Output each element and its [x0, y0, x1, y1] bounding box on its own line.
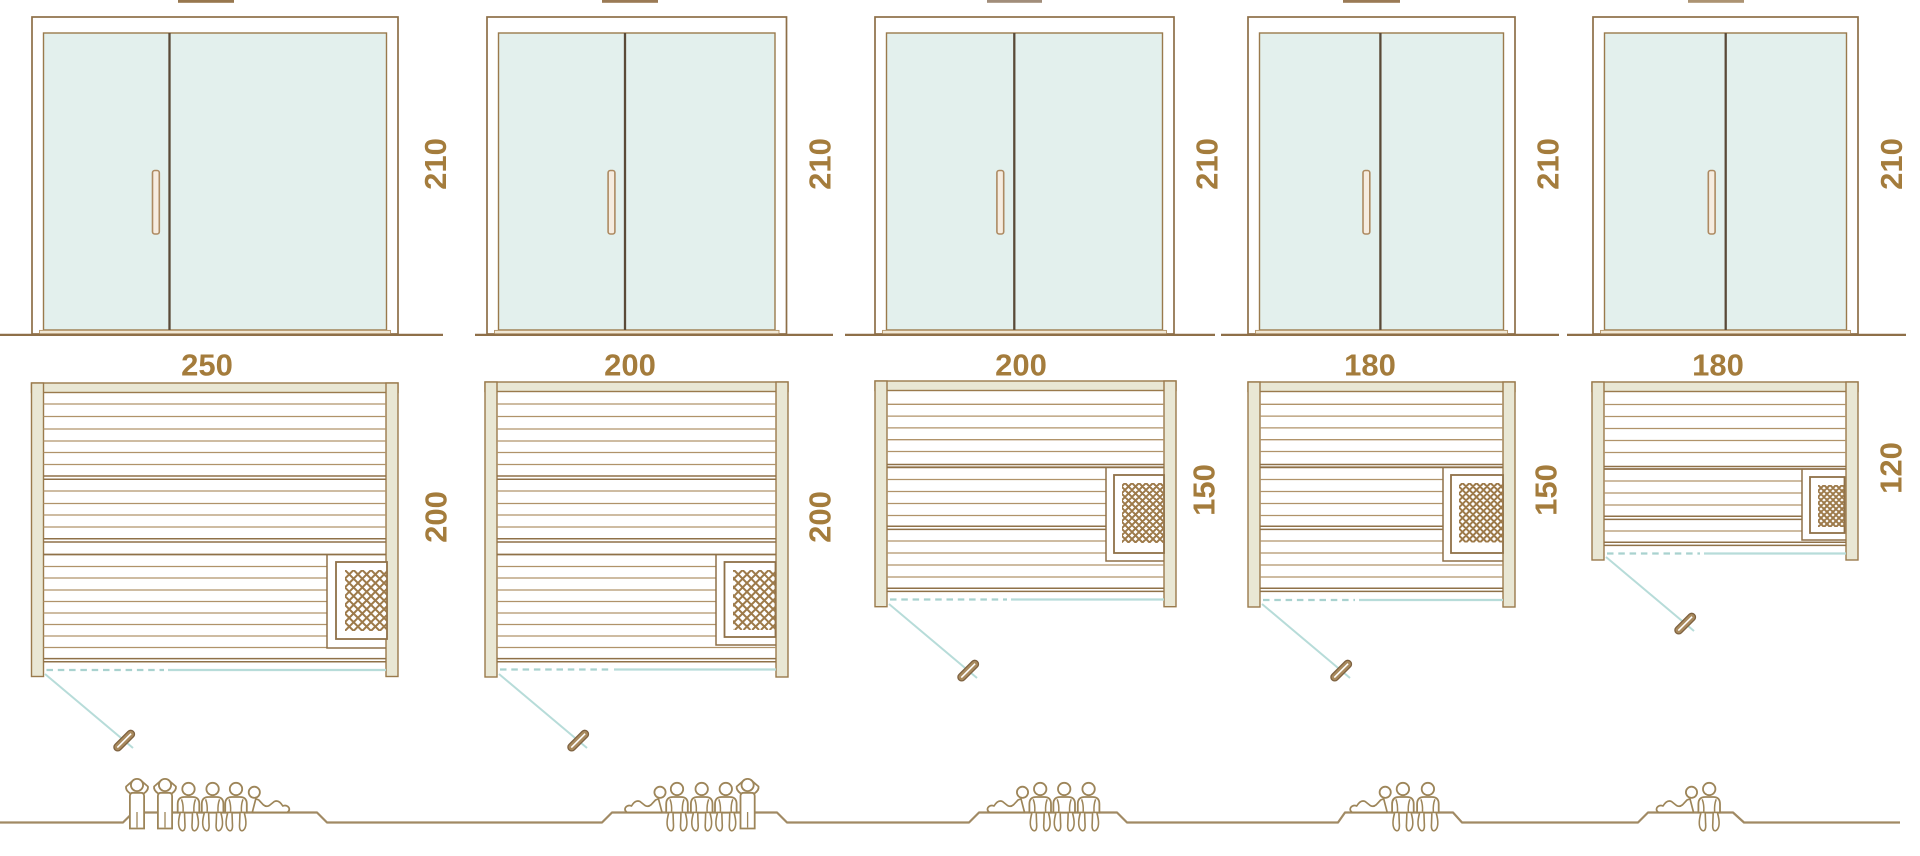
svg-text:150: 150: [1529, 464, 1564, 516]
svg-text:180: 180: [1344, 348, 1396, 383]
svg-text:210: 210: [418, 138, 453, 190]
svg-text:180: 180: [1692, 348, 1744, 383]
svg-text:210: 210: [1190, 138, 1225, 190]
svg-text:150: 150: [1187, 464, 1222, 516]
svg-text:200: 200: [803, 491, 838, 543]
svg-text:210: 210: [803, 138, 838, 190]
svg-text:200: 200: [995, 348, 1047, 383]
svg-text:120: 120: [1874, 442, 1909, 494]
svg-text:210: 210: [1874, 138, 1909, 190]
svg-text:200: 200: [604, 348, 656, 383]
svg-text:200: 200: [419, 491, 454, 543]
svg-text:210: 210: [1531, 138, 1566, 190]
svg-text:250: 250: [181, 348, 233, 383]
